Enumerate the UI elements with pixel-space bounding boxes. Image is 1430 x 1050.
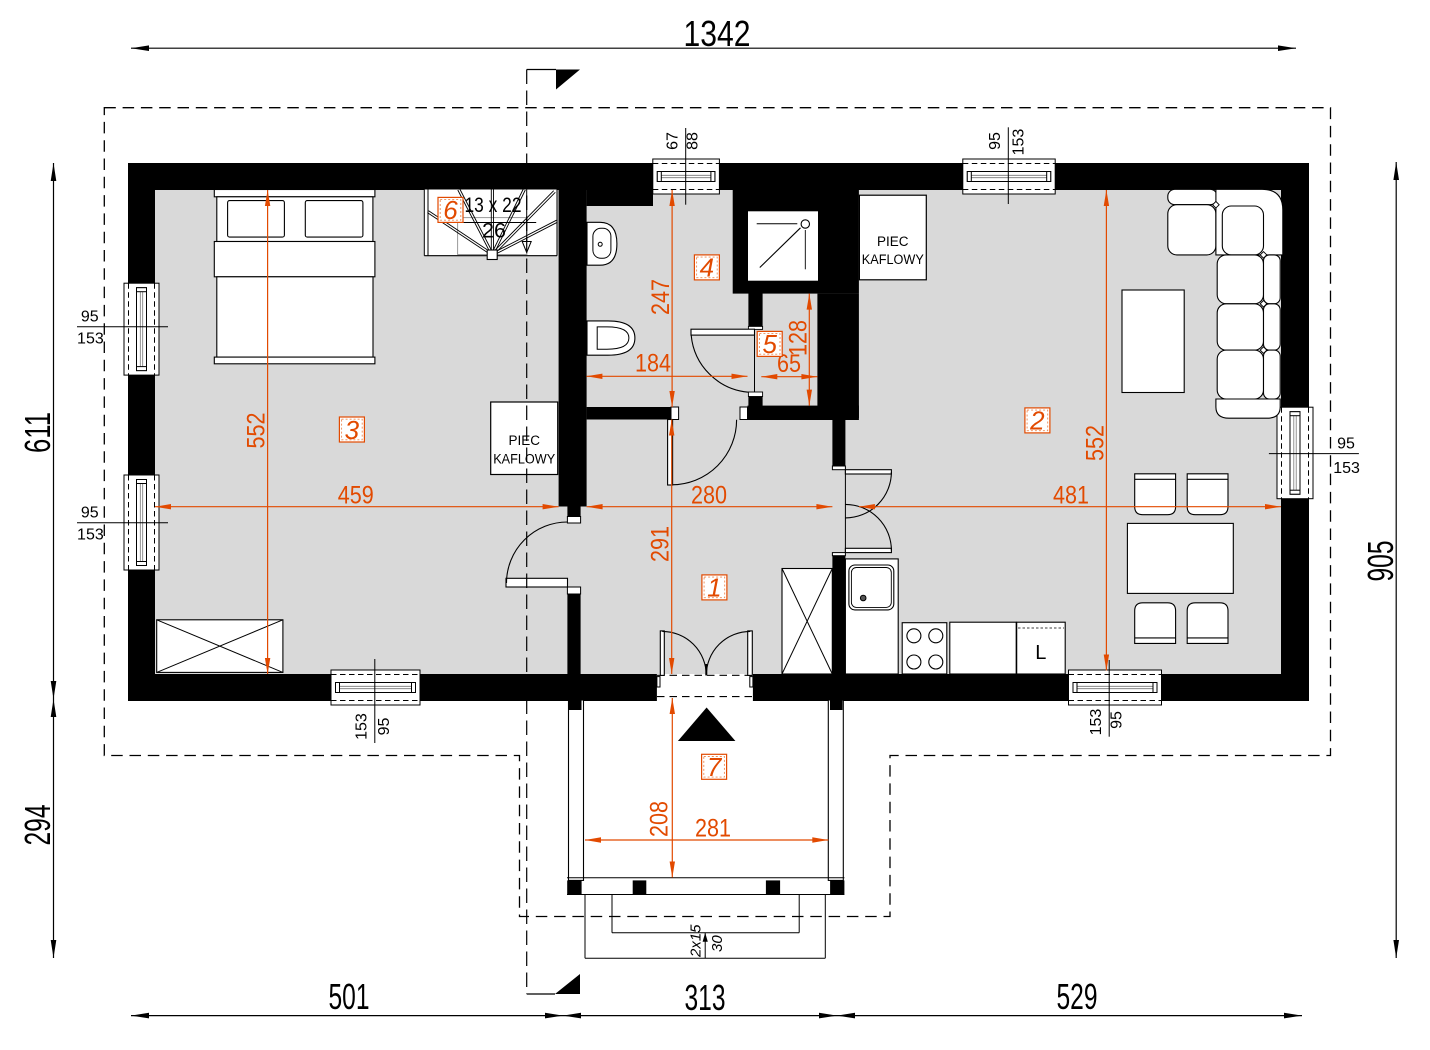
svg-text:481: 481 [1053,482,1089,510]
svg-text:1342: 1342 [684,13,751,54]
svg-text:KAFLOWY: KAFLOWY [493,452,555,467]
svg-text:30: 30 [709,935,726,952]
svg-text:3: 3 [345,415,360,445]
svg-text:95: 95 [376,718,393,736]
svg-text:459: 459 [338,482,374,510]
svg-text:5: 5 [762,329,777,359]
svg-text:PIEC: PIEC [877,234,909,249]
svg-text:153: 153 [1088,709,1105,736]
svg-text:291: 291 [647,526,675,562]
svg-text:184: 184 [635,350,671,378]
svg-text:95: 95 [987,132,1004,150]
svg-text:208: 208 [645,801,673,837]
svg-text:1: 1 [707,573,721,603]
svg-text:529: 529 [1057,976,1098,1017]
svg-text:95: 95 [81,505,99,522]
svg-text:128: 128 [784,320,812,356]
svg-text:95: 95 [1337,436,1355,453]
svg-text:153: 153 [1333,460,1360,477]
svg-text:2: 2 [1029,406,1045,436]
svg-text:501: 501 [329,976,370,1017]
svg-text:153: 153 [354,713,371,740]
svg-text:L: L [1035,642,1046,664]
svg-text:552: 552 [243,413,271,449]
svg-text:153: 153 [1011,129,1028,156]
svg-text:153: 153 [77,527,104,544]
svg-text:294: 294 [17,805,58,846]
svg-text:88: 88 [685,132,702,150]
svg-text:7: 7 [707,752,723,782]
svg-text:67: 67 [665,132,682,150]
svg-text:611: 611 [17,412,58,453]
svg-text:KAFLOWY: KAFLOWY [862,252,924,267]
svg-text:PIEC: PIEC [508,433,540,448]
svg-text:153: 153 [77,331,104,348]
svg-text:26: 26 [482,220,506,243]
svg-text:247: 247 [647,279,675,315]
svg-text:280: 280 [691,482,727,510]
svg-text:552: 552 [1081,425,1109,461]
svg-text:95: 95 [1109,711,1126,729]
svg-text:95: 95 [81,309,99,326]
svg-text:4: 4 [700,253,714,283]
svg-text:2x15: 2x15 [688,924,705,958]
svg-text:13 x 22: 13 x 22 [465,194,522,217]
svg-text:905: 905 [1360,541,1401,582]
svg-text:281: 281 [695,815,731,843]
svg-text:6: 6 [443,195,458,225]
svg-text:313: 313 [685,977,726,1018]
